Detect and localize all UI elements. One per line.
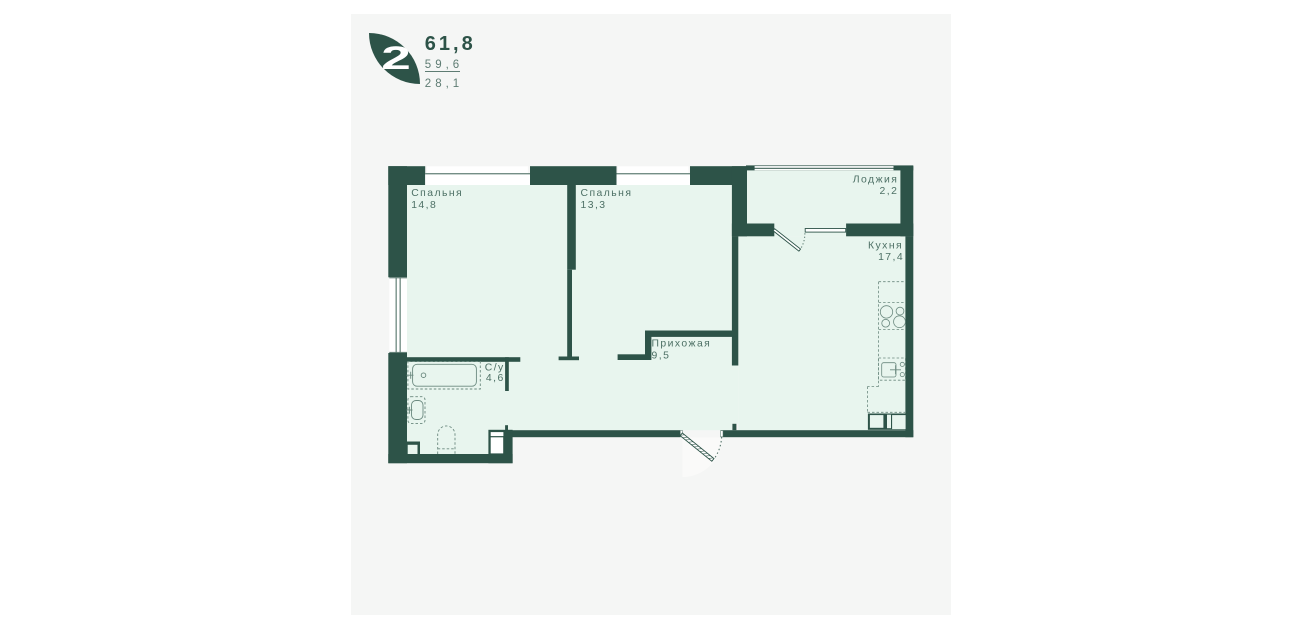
- svg-text:Спальня: Спальня: [411, 188, 463, 199]
- svg-text:2,2: 2,2: [880, 186, 899, 197]
- svg-text:14,8: 14,8: [411, 200, 437, 211]
- svg-text:13,3: 13,3: [581, 200, 607, 211]
- svg-text:С/у: С/у: [485, 362, 505, 373]
- svg-text:Прихожая: Прихожая: [652, 339, 712, 350]
- svg-text:Лоджия: Лоджия: [853, 175, 899, 186]
- svg-text:Спальня: Спальня: [581, 188, 633, 199]
- svg-text:17,4: 17,4: [878, 252, 904, 263]
- svg-text:4,6: 4,6: [486, 373, 505, 384]
- svg-text:Кухня: Кухня: [868, 240, 903, 251]
- svg-text:9,5: 9,5: [652, 351, 671, 362]
